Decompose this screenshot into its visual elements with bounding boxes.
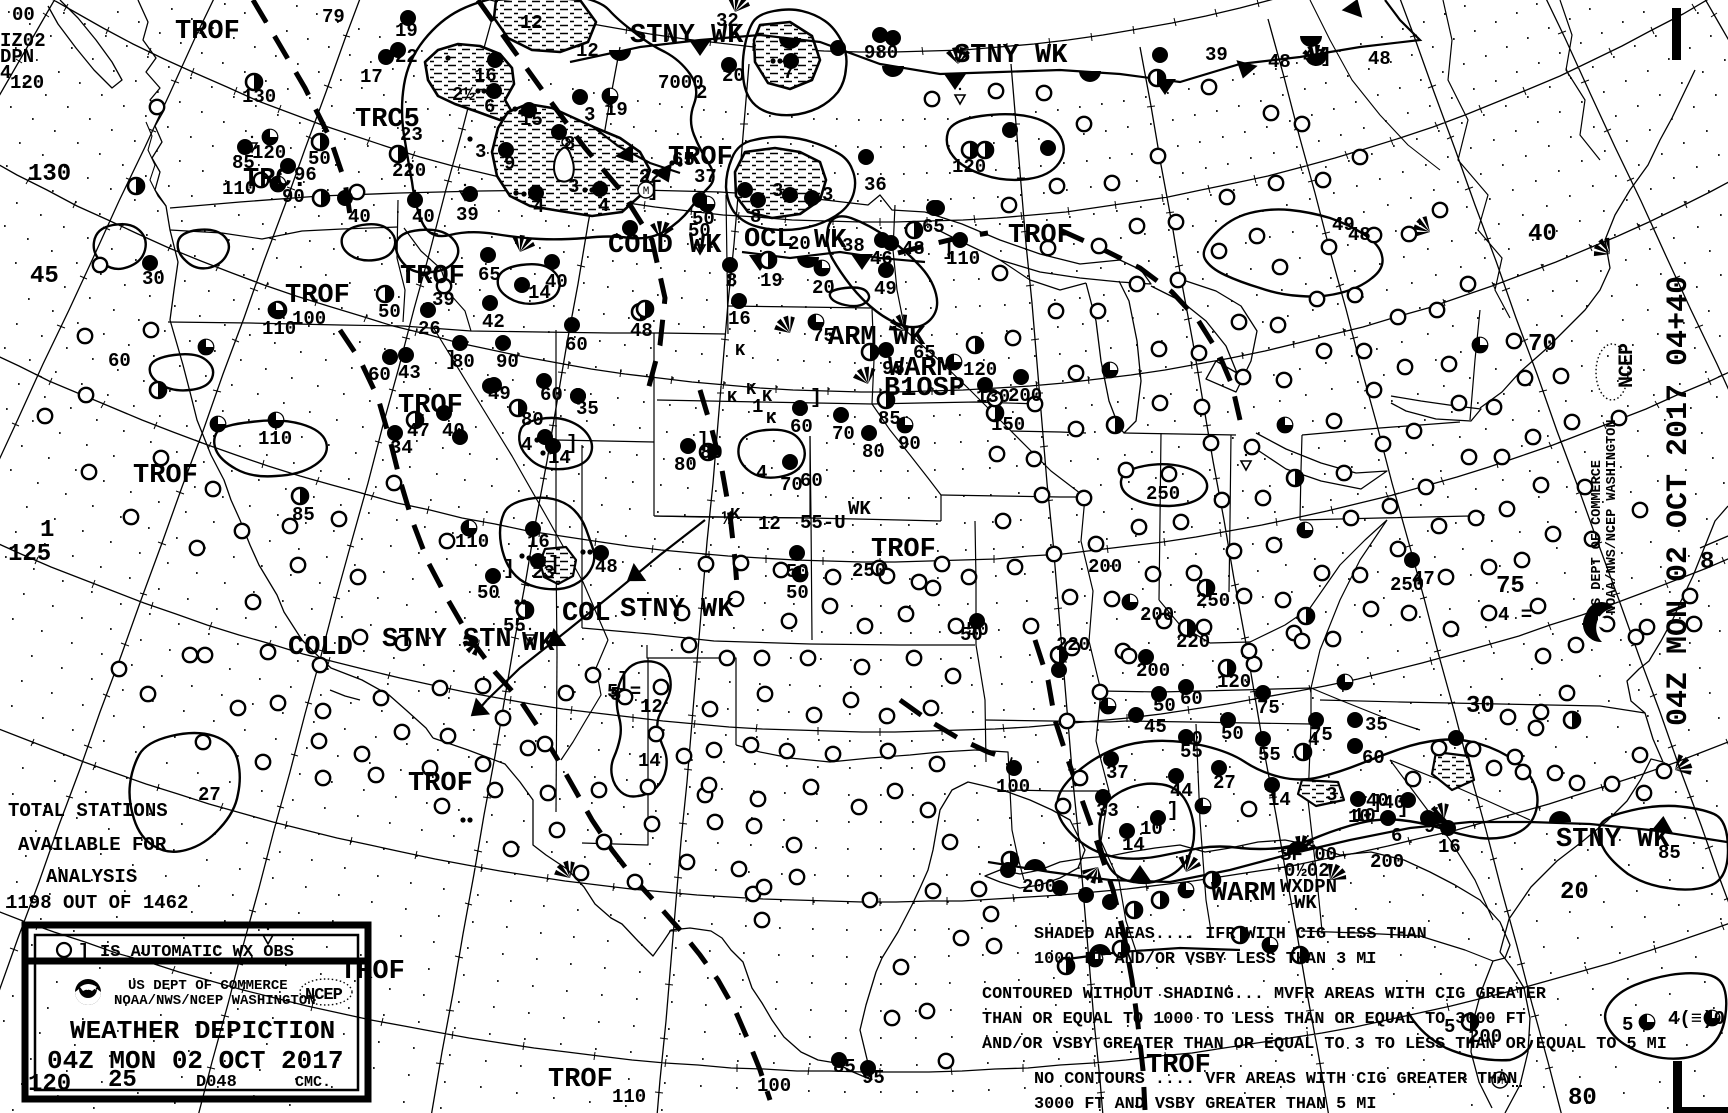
- svg-text:35: 35: [576, 398, 599, 420]
- svg-text:90: 90: [496, 351, 519, 373]
- svg-text:200: 200: [1022, 876, 1056, 898]
- svg-text:35: 35: [1365, 714, 1388, 736]
- svg-text:125: 125: [8, 541, 51, 568]
- svg-text:WEATHER DEPICTION: WEATHER DEPICTION: [70, 1016, 335, 1046]
- svg-text:60: 60: [800, 470, 823, 492]
- svg-text:80: 80: [521, 409, 544, 431]
- svg-text:00: 00: [12, 4, 35, 26]
- svg-text:65: 65: [478, 264, 501, 286]
- svg-text:6: 6: [484, 96, 495, 118]
- svg-text:½: ½: [722, 508, 734, 530]
- svg-text:NCEP: NCEP: [305, 986, 343, 1005]
- svg-text:60: 60: [540, 384, 563, 406]
- svg-text:TROF: TROF: [400, 262, 465, 292]
- svg-text:48: 48: [1368, 48, 1391, 70]
- svg-text:220: 220: [1176, 631, 1210, 653]
- svg-text:12: 12: [640, 696, 663, 718]
- svg-text:55: 55: [503, 615, 526, 637]
- svg-text:220: 220: [1056, 634, 1090, 656]
- svg-text:16: 16: [527, 531, 550, 553]
- svg-text:200: 200: [1136, 660, 1170, 682]
- svg-text:110: 110: [258, 428, 292, 450]
- svg-text:K: K: [766, 410, 777, 429]
- svg-text:3: 3: [584, 104, 595, 126]
- svg-text:34: 34: [390, 437, 413, 459]
- svg-text:D048: D048: [196, 1073, 237, 1092]
- svg-text:85: 85: [833, 1056, 856, 1078]
- svg-text:130: 130: [28, 161, 71, 188]
- svg-text:85: 85: [232, 152, 255, 174]
- svg-text:CONTOURED WITHOUT SHADING... M: CONTOURED WITHOUT SHADING... MVFR AREAS …: [982, 985, 1547, 1004]
- svg-text:60: 60: [1362, 747, 1385, 769]
- svg-text:55: 55: [1258, 744, 1281, 766]
- svg-text:4(≡)0: 4(≡)0: [1668, 1008, 1725, 1030]
- svg-text:60: 60: [565, 334, 588, 356]
- svg-text:65: 65: [913, 342, 936, 364]
- svg-text:44: 44: [1170, 780, 1193, 802]
- svg-text:17: 17: [360, 66, 383, 88]
- svg-text:WARM: WARM: [1211, 879, 1276, 909]
- svg-text:20: 20: [722, 65, 745, 87]
- svg-text:4 =: 4 =: [1498, 604, 1532, 626]
- svg-text:3: 3: [772, 180, 783, 202]
- svg-text:130: 130: [242, 86, 276, 108]
- svg-text:75: 75: [1496, 573, 1525, 600]
- svg-text:90: 90: [282, 186, 305, 208]
- svg-text:48: 48: [630, 320, 653, 342]
- svg-text:16: 16: [474, 65, 497, 87]
- svg-text:STNY STN: STNY STN: [382, 625, 512, 655]
- svg-text:STNY WK: STNY WK: [620, 595, 734, 625]
- svg-text:TROF: TROF: [133, 461, 198, 491]
- svg-text:TROF: TROF: [285, 281, 350, 311]
- svg-text:42: 42: [482, 311, 505, 333]
- svg-text:75: 75: [1310, 724, 1333, 746]
- svg-text:4: 4: [598, 195, 609, 217]
- svg-text:250: 250: [1146, 483, 1180, 505]
- svg-text:96: 96: [294, 164, 317, 186]
- svg-text:]: ]: [697, 430, 709, 453]
- svg-text:65: 65: [922, 216, 945, 238]
- svg-text:3: 3: [475, 141, 486, 163]
- svg-text:4: 4: [521, 434, 532, 456]
- svg-text:50: 50: [1221, 723, 1244, 745]
- svg-text:NOAA/NWS/NCEP WASHINGTON: NOAA/NWS/NCEP WASHINGTON: [1605, 420, 1620, 614]
- svg-text:1198 OUT OF 1462: 1198 OUT OF 1462: [6, 892, 188, 914]
- svg-text:120: 120: [952, 156, 986, 178]
- svg-text:10: 10: [1353, 805, 1376, 827]
- svg-text:4: 4: [533, 196, 544, 218]
- svg-text:23: 23: [400, 124, 423, 146]
- svg-text:NOAA: NOAA: [82, 985, 97, 992]
- svg-text:55-U: 55-U: [800, 512, 846, 534]
- svg-text:US DEPT OF COMMERCE: US DEPT OF COMMERCE: [128, 978, 288, 994]
- svg-text:75: 75: [812, 325, 835, 347]
- svg-text:WK: WK: [1294, 892, 1317, 914]
- svg-text:]: ]: [1167, 800, 1179, 823]
- svg-text:8: 8: [564, 133, 575, 155]
- svg-text:15: 15: [520, 109, 543, 131]
- svg-text:20: 20: [788, 233, 811, 255]
- svg-text:49: 49: [488, 383, 511, 405]
- svg-text:]: ]: [548, 554, 560, 577]
- svg-text:120: 120: [1217, 671, 1251, 693]
- svg-text:2: 2: [696, 82, 707, 104]
- svg-text:16: 16: [1438, 836, 1461, 858]
- svg-text:4: 4: [756, 462, 767, 484]
- svg-text:12: 12: [758, 513, 781, 535]
- svg-text:1: 1: [752, 396, 763, 418]
- svg-text:1: 1: [40, 517, 54, 544]
- svg-text:1000 FT AND/OR VSBY LESS THAN: 1000 FT AND/OR VSBY LESS THAN 3 MI: [1034, 950, 1376, 969]
- svg-text:8: 8: [1700, 549, 1714, 576]
- svg-text:TOTAL STATIONS: TOTAL STATIONS: [8, 800, 168, 822]
- svg-text:2½: 2½: [452, 84, 475, 106]
- svg-text:110: 110: [262, 318, 296, 340]
- svg-text:AVAILABLE FOR: AVAILABLE FOR: [18, 834, 167, 856]
- svg-text:43: 43: [398, 362, 421, 384]
- svg-text:55: 55: [1180, 741, 1203, 763]
- svg-text:60: 60: [1180, 688, 1203, 710]
- svg-text:]: ]: [810, 387, 822, 410]
- svg-text:70: 70: [780, 474, 803, 496]
- svg-text:45: 45: [30, 263, 59, 290]
- svg-text:NO CONTOURS .... VFR AREAS WIT: NO CONTOURS .... VFR AREAS WITH CIG GREA…: [1034, 1070, 1517, 1089]
- svg-text:04Z MON 02 OCT 2017: 04Z MON 02 OCT 2017: [47, 1046, 343, 1076]
- svg-text:14: 14: [528, 282, 551, 304]
- svg-text:]: ]: [942, 239, 954, 262]
- svg-text:85: 85: [292, 504, 315, 526]
- svg-text:95: 95: [882, 358, 905, 380]
- svg-text:3: 3: [1326, 784, 1337, 806]
- svg-text:200: 200: [1370, 851, 1404, 873]
- svg-text:38: 38: [842, 235, 865, 257]
- svg-text:SHADED AREAS.... IFR WITH CIG: SHADED AREAS.... IFR WITH CIG LESS THAN: [1034, 925, 1427, 944]
- svg-text:8: 8: [750, 206, 761, 228]
- svg-text:37: 37: [1106, 762, 1129, 784]
- svg-text:7: 7: [783, 62, 794, 84]
- svg-text:50: 50: [1153, 695, 1176, 717]
- svg-text:22: 22: [395, 46, 418, 68]
- svg-text:K: K: [735, 342, 746, 361]
- svg-text:40: 40: [442, 420, 465, 442]
- svg-text:OCL: OCL: [744, 225, 793, 255]
- svg-text:48: 48: [595, 556, 618, 578]
- svg-text:110: 110: [222, 178, 256, 200]
- svg-text:TROF: TROF: [1008, 221, 1073, 251]
- svg-text:27: 27: [1213, 772, 1236, 794]
- svg-text:980: 980: [864, 42, 898, 64]
- svg-text:60: 60: [790, 416, 813, 438]
- svg-text:110: 110: [612, 1086, 646, 1108]
- svg-text:79: 79: [322, 6, 345, 28]
- svg-text:40: 40: [348, 206, 371, 228]
- svg-text:46: 46: [870, 248, 893, 270]
- svg-text:48: 48: [902, 238, 925, 260]
- svg-text:45: 45: [1144, 716, 1167, 738]
- svg-text:120: 120: [963, 359, 997, 381]
- svg-text:THAN OR EQUAL TO 1000 TO LESS: THAN OR EQUAL TO 1000 TO LESS THAN OR EQ…: [982, 1010, 1526, 1029]
- svg-text:NCEP: NCEP: [1616, 343, 1639, 388]
- svg-text:12: 12: [576, 40, 599, 62]
- svg-text:14: 14: [1122, 834, 1145, 856]
- svg-text:100: 100: [292, 308, 326, 330]
- svg-text:250: 250: [1196, 590, 1230, 612]
- svg-text:3000 FT AND VSBY GREATER THAN: 3000 FT AND VSBY GREATER THAN 5 MI: [1034, 1095, 1376, 1113]
- svg-text:9: 9: [1424, 816, 1435, 838]
- svg-text:95: 95: [862, 1067, 885, 1089]
- svg-text:39: 39: [432, 289, 455, 311]
- svg-text:130: 130: [976, 386, 1010, 408]
- svg-text:120: 120: [10, 72, 44, 94]
- svg-text:36: 36: [864, 174, 887, 196]
- svg-text:]: ]: [503, 558, 515, 581]
- svg-text:K: K: [727, 389, 738, 408]
- svg-text:80: 80: [674, 454, 697, 476]
- svg-text:3: 3: [568, 176, 579, 198]
- svg-text:8: 8: [726, 270, 737, 292]
- svg-text:]: ]: [1320, 46, 1332, 69]
- svg-text:19: 19: [605, 99, 628, 121]
- svg-text:COLD: COLD: [288, 633, 353, 663]
- svg-text:100: 100: [996, 776, 1030, 798]
- svg-text:]: ]: [445, 349, 457, 372]
- svg-text:32: 32: [716, 10, 739, 32]
- svg-text:100: 100: [757, 1075, 791, 1097]
- svg-text:49: 49: [874, 278, 897, 300]
- svg-text:AND/OR VSBY GREATER THAN OR EQ: AND/OR VSBY GREATER THAN OR EQUAL TO 3 T…: [982, 1035, 1667, 1054]
- svg-text:19: 19: [395, 20, 418, 42]
- svg-text:47: 47: [1412, 568, 1435, 590]
- svg-text:85: 85: [1658, 842, 1681, 864]
- svg-text:27: 27: [198, 784, 221, 806]
- svg-text:20: 20: [812, 277, 835, 299]
- svg-text:49: 49: [1332, 214, 1355, 236]
- svg-text:70: 70: [832, 423, 855, 445]
- svg-text:14: 14: [1268, 789, 1291, 811]
- svg-text:WK: WK: [848, 498, 871, 520]
- svg-text:19: 19: [760, 270, 783, 292]
- svg-text:TROF: TROF: [548, 1065, 613, 1095]
- svg-text:75: 75: [1257, 697, 1280, 719]
- svg-text:48: 48: [1268, 51, 1291, 73]
- svg-text:TROF: TROF: [408, 769, 473, 799]
- svg-text:12: 12: [520, 12, 543, 34]
- svg-text:9: 9: [504, 153, 515, 175]
- svg-text:16: 16: [728, 308, 751, 330]
- svg-text:CMC.: CMC.: [295, 1074, 331, 1091]
- svg-text:70: 70: [1528, 331, 1557, 358]
- svg-text:200: 200: [1140, 604, 1174, 626]
- svg-text:26: 26: [418, 318, 441, 340]
- svg-text:4: 4: [0, 62, 11, 84]
- svg-text:14: 14: [638, 750, 661, 772]
- svg-text:39: 39: [1205, 44, 1228, 66]
- svg-text:TROF: TROF: [175, 17, 240, 47]
- svg-text:20: 20: [1560, 879, 1589, 906]
- svg-text:3: 3: [822, 184, 833, 206]
- svg-text:80: 80: [862, 441, 885, 463]
- svg-text:60: 60: [108, 350, 131, 372]
- svg-text:IS AUTOMATIC WX OBS: IS AUTOMATIC WX OBS: [100, 943, 294, 962]
- svg-text:6: 6: [1391, 825, 1402, 847]
- svg-text:NOAA/NWS/NCEP WASHINGTON: NOAA/NWS/NCEP WASHINGTON: [114, 993, 316, 1009]
- svg-text:]: ]: [566, 433, 578, 456]
- svg-text:50: 50: [688, 220, 711, 242]
- svg-text:90: 90: [898, 433, 921, 455]
- svg-text:COL: COL: [562, 599, 611, 629]
- svg-text:5: 5: [1622, 1014, 1633, 1036]
- svg-text:STNY WK: STNY WK: [954, 41, 1068, 71]
- svg-text:37: 37: [694, 166, 717, 188]
- svg-text:]: ]: [617, 670, 629, 693]
- svg-text:30: 30: [142, 268, 165, 290]
- svg-text:50: 50: [378, 301, 401, 323]
- svg-text:150: 150: [991, 414, 1025, 436]
- svg-text:04Z MON 02 OCT 2017 04+40: 04Z MON 02 OCT 2017 04+40: [1662, 276, 1696, 726]
- svg-text:40: 40: [412, 206, 435, 228]
- svg-text:200: 200: [1088, 556, 1122, 578]
- svg-text:50: 50: [786, 582, 809, 604]
- svg-text:30: 30: [1466, 693, 1495, 720]
- svg-text:50: 50: [786, 561, 809, 583]
- svg-text:ARM WK: ARM WK: [828, 323, 926, 353]
- svg-text:40: 40: [1528, 221, 1557, 248]
- svg-text:]: ]: [78, 941, 89, 963]
- svg-text:]: ]: [1397, 797, 1409, 820]
- svg-text:110: 110: [455, 531, 489, 553]
- svg-text:80: 80: [1568, 1085, 1597, 1112]
- svg-text:K: K: [762, 388, 773, 407]
- svg-text:200: 200: [1008, 385, 1042, 407]
- svg-text:120: 120: [252, 142, 286, 164]
- svg-text:65: 65: [672, 149, 695, 171]
- svg-text:33: 33: [1096, 800, 1119, 822]
- svg-text:250: 250: [852, 560, 886, 582]
- svg-text:85: 85: [878, 408, 901, 430]
- svg-text:WK: WK: [522, 629, 555, 659]
- svg-text:ANALYSIS: ANALYSIS: [46, 866, 137, 888]
- svg-text:TROF: TROF: [398, 391, 463, 421]
- svg-text:220: 220: [392, 160, 426, 182]
- svg-text:50: 50: [477, 582, 500, 604]
- svg-text:50: 50: [966, 619, 989, 641]
- svg-text:STNY WK: STNY WK: [1556, 825, 1670, 855]
- svg-text:US DEPT OF COMMERCE: US DEPT OF COMMERCE: [1590, 460, 1605, 614]
- svg-text:]: ]: [647, 180, 659, 203]
- svg-text:39: 39: [456, 204, 479, 226]
- svg-text:60: 60: [368, 364, 391, 386]
